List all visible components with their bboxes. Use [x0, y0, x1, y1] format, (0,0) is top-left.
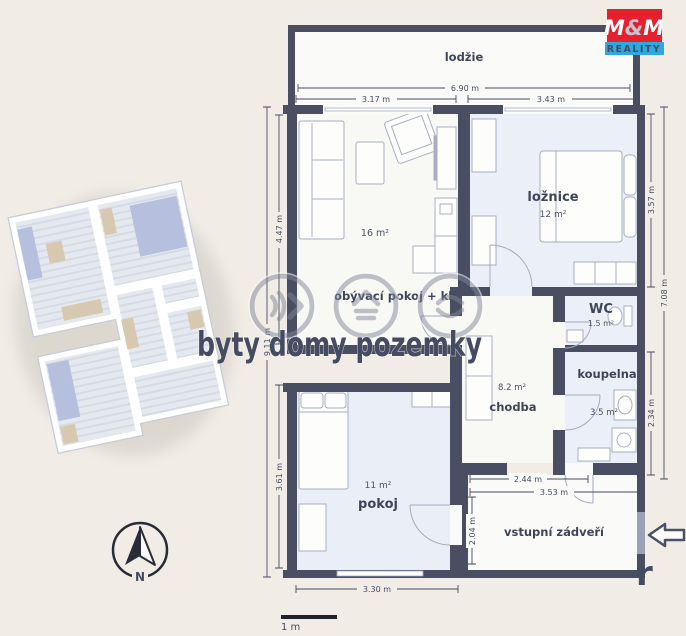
kitchen-unit: [413, 246, 435, 273]
watermark-fragment: r: [636, 554, 653, 594]
wc-label: WC: [589, 302, 613, 317]
kitchen-unit: [435, 236, 457, 273]
bathroom-label: koupelna: [577, 367, 636, 381]
hall-area: 8.2 m²: [498, 383, 526, 393]
living-area: 16 m²: [361, 228, 389, 239]
window-room: [337, 571, 423, 576]
tv: [434, 136, 437, 180]
dim-loggia-width: 6.90 m: [451, 84, 479, 93]
loggia-label: lodžie: [445, 50, 484, 64]
dim-bedroom-depth: 3.57 m: [647, 186, 656, 214]
bedroom-label: ložnice: [527, 190, 578, 205]
hall-cabinet: [466, 376, 492, 420]
dim-bedroom-width: 3.43 m: [537, 95, 565, 104]
toilet-tank: [624, 306, 632, 326]
dim-living-depth: 4.47 m: [275, 215, 284, 243]
small-sink: [567, 330, 583, 342]
wc-area: 1.5 m²: [588, 319, 614, 328]
tv-board: [437, 127, 456, 189]
low-cabinet: [574, 262, 636, 284]
floorplan-canvas: 6.90 m 3.17 m 3.43 m 4.47 m 9.11 m 3.61 …: [0, 0, 686, 636]
room-area: 11 m²: [365, 481, 392, 491]
dim-right-total: 7.08 m: [660, 279, 669, 307]
pillow: [301, 393, 323, 408]
room-label: pokoj: [358, 497, 398, 512]
bedroom-area: 12 m²: [540, 210, 567, 220]
dim-vestibule-width: 3.53 m: [540, 488, 568, 497]
sofa: [299, 121, 344, 239]
dim-vestibule-inner-width: 2.44 m: [514, 475, 542, 484]
bathroom-area: 3.5 m²: [590, 408, 618, 418]
wardrobe: [472, 216, 496, 265]
dim-bathroom-depth: 2.34 m: [647, 399, 656, 427]
coffee-table: [356, 142, 384, 184]
floorplan-screenshot: 6.90 m 3.17 m 3.43 m 4.47 m 9.11 m 3.61 …: [0, 0, 686, 636]
bath-cabinet: [578, 448, 610, 461]
wardrobe: [299, 504, 326, 551]
dim-vestibule-depth: 2.04 m: [468, 517, 477, 545]
scale-bar-line: [281, 615, 337, 619]
dim-living-width: 3.17 m: [362, 95, 390, 104]
brand-logo: M&M REALITY: [604, 9, 664, 55]
hall-label: chodba: [489, 400, 536, 414]
north-label: N: [135, 570, 145, 584]
watermark-text: byty domy pozemky: [197, 325, 482, 365]
dim-room-depth: 3.61 m: [275, 463, 284, 491]
scale-bar-label: 1 m: [281, 622, 300, 633]
logo-reality-text: REALITY: [607, 44, 662, 55]
pillow: [624, 197, 636, 237]
entrance-door: [637, 512, 645, 554]
pillow: [624, 155, 636, 195]
logo-mm-text: M&M: [604, 16, 664, 40]
dim-room-width: 3.30 m: [363, 585, 391, 594]
balcony-door-living: [325, 108, 431, 111]
wardrobe: [472, 119, 496, 172]
vestibule-label: vstupní zádveří: [504, 525, 605, 539]
pillow: [325, 393, 346, 408]
balcony-door-bedroom: [505, 108, 611, 111]
